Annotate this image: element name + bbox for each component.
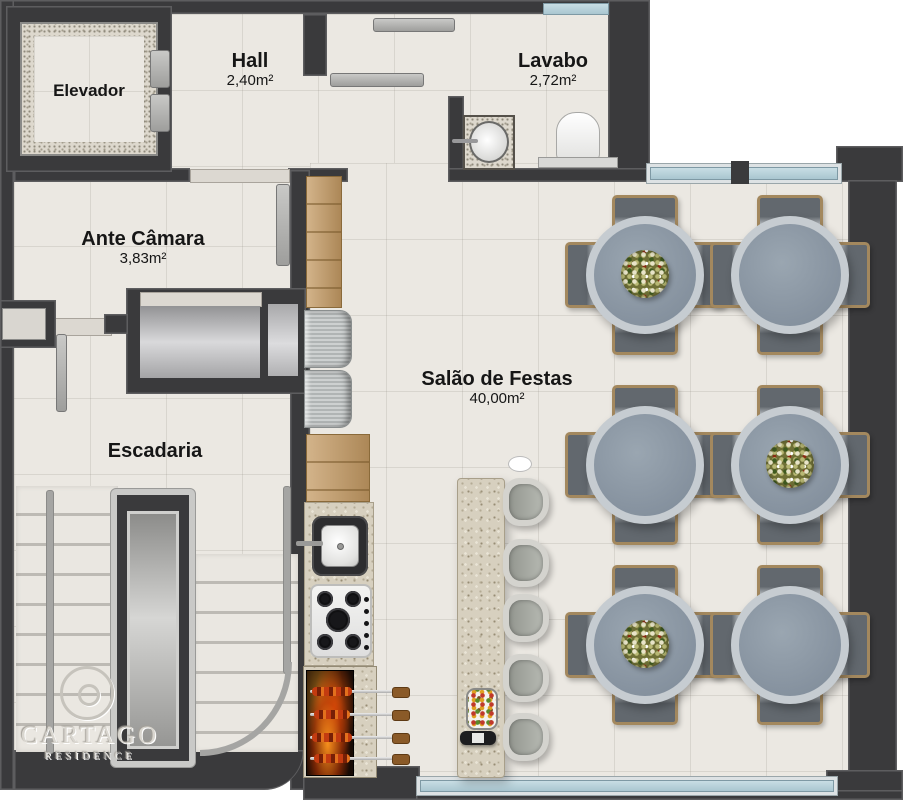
small-plate bbox=[508, 456, 532, 472]
elevator-name: Elevador bbox=[53, 80, 125, 102]
lavabo-label: Lavabo 2,72m² bbox=[518, 50, 588, 90]
sink-drain bbox=[337, 543, 344, 550]
skewer-meat-3 bbox=[312, 733, 352, 742]
ante-camara-name: Ante Câmara bbox=[81, 228, 204, 250]
bar-stool-seat bbox=[509, 660, 543, 696]
bottle-label bbox=[472, 733, 484, 743]
elevator-door-a bbox=[150, 50, 170, 88]
wall-hall-stub bbox=[303, 14, 327, 76]
stove-burner-4 bbox=[345, 634, 361, 650]
stair-rail-right bbox=[283, 486, 291, 674]
stove-knob-2 bbox=[364, 609, 369, 614]
stove-burner-1 bbox=[317, 591, 333, 607]
hall-name: Hall bbox=[227, 50, 274, 72]
ante-camara-doorway bbox=[190, 169, 290, 183]
toilet-tank bbox=[538, 157, 618, 168]
table-top bbox=[739, 594, 841, 696]
skewer-meat-4 bbox=[314, 754, 350, 763]
elevator-door-b bbox=[150, 94, 170, 132]
bar-stool-2 bbox=[503, 539, 549, 587]
bar-stool-5 bbox=[503, 713, 549, 761]
ante-camara-label: Ante Câmara 3,83m² bbox=[81, 228, 204, 268]
skewer-meat-1 bbox=[312, 687, 352, 696]
skewer-handle-4 bbox=[392, 754, 410, 765]
stove-knob-1 bbox=[364, 597, 369, 602]
stove-knob-4 bbox=[364, 633, 369, 638]
salao-area: 40,00m² bbox=[421, 390, 572, 408]
wall-salao-top-corner bbox=[836, 146, 903, 182]
logo-emblem-inner-icon bbox=[78, 684, 100, 706]
kitchen-cabinet-lower bbox=[306, 434, 370, 502]
duct-shaft-arm bbox=[104, 314, 128, 334]
dining-table-6 bbox=[710, 565, 870, 725]
wall-lavabo-bottom bbox=[448, 168, 650, 182]
bar-stool-seat bbox=[509, 484, 543, 520]
skewer-handle-1 bbox=[392, 687, 410, 698]
stove-knob-5 bbox=[364, 645, 369, 650]
salao-name: Salão de Festas bbox=[421, 368, 572, 390]
dining-table-3 bbox=[565, 385, 725, 545]
refrigerator-b bbox=[304, 370, 352, 428]
logo-name: CARTAGO bbox=[10, 722, 170, 750]
salao-top-window-mullion bbox=[731, 161, 749, 184]
escadaria-label: Escadaria bbox=[108, 440, 203, 462]
table-top bbox=[739, 224, 841, 326]
stove-burner-center bbox=[326, 608, 350, 632]
outside-right-edge bbox=[897, 163, 903, 800]
dining-table-4 bbox=[710, 385, 870, 545]
dining-table-5 bbox=[565, 565, 725, 725]
stove-burner-3 bbox=[317, 634, 333, 650]
floor-plan: Elevador bbox=[0, 0, 903, 800]
salao-label: Salão de Festas 40,00m² bbox=[421, 368, 572, 408]
wall-lavabo-right bbox=[608, 0, 650, 182]
salad-platter bbox=[621, 620, 669, 668]
lavabo-name: Lavabo bbox=[518, 50, 588, 72]
bar-stool-seat bbox=[509, 600, 543, 636]
kitchen-faucet bbox=[296, 541, 323, 546]
stair-rail-left bbox=[46, 490, 54, 754]
bar-stool-3 bbox=[503, 594, 549, 642]
stair-door-leaf bbox=[56, 334, 67, 412]
duct-shaft-core bbox=[140, 306, 260, 378]
food-platter bbox=[466, 688, 498, 730]
left-wall-niche-inner bbox=[2, 308, 46, 340]
refrigerator-a bbox=[304, 310, 352, 368]
dining-table-2 bbox=[710, 195, 870, 355]
salao-bottom-window bbox=[420, 780, 834, 792]
lavabo-window bbox=[543, 3, 609, 15]
logo-subtitle: RESIDENCE bbox=[10, 751, 170, 762]
elevator-label: Elevador bbox=[53, 80, 125, 102]
table-top bbox=[594, 414, 696, 516]
skewer-handle-3 bbox=[392, 733, 410, 744]
logo: CARTAGO RESIDENCE bbox=[10, 722, 170, 762]
bar-stool-seat bbox=[509, 719, 543, 755]
hall-label: Hall 2,40m² bbox=[227, 50, 274, 90]
bar-stool-seat bbox=[509, 545, 543, 581]
stair-void bbox=[127, 511, 179, 749]
skewer-handle-2 bbox=[392, 710, 410, 721]
hall-door-top bbox=[373, 18, 455, 32]
toilet-bowl bbox=[556, 112, 600, 162]
stove-burner-2 bbox=[345, 591, 361, 607]
escadaria-name: Escadaria bbox=[108, 440, 203, 462]
duct-shaft-lintel bbox=[140, 292, 262, 307]
bar-stool-1 bbox=[503, 478, 549, 526]
bar-stool-4 bbox=[503, 654, 549, 702]
dining-table-1 bbox=[565, 195, 725, 355]
lavabo-area: 2,72m² bbox=[518, 72, 588, 90]
duct-shaft-side bbox=[268, 304, 298, 376]
ante-camara-area: 3,83m² bbox=[81, 250, 204, 268]
skewer-meat-2 bbox=[314, 710, 350, 719]
wc-faucet bbox=[452, 139, 478, 143]
kitchen-cabinet-upper bbox=[306, 176, 342, 308]
hall-door-mid bbox=[330, 73, 424, 87]
outside-top-right bbox=[650, 0, 903, 163]
hall-area: 2,40m² bbox=[227, 72, 274, 90]
stove-knob-3 bbox=[364, 621, 369, 626]
salad-platter bbox=[621, 250, 669, 298]
ante-camara-door-leaf bbox=[276, 184, 290, 266]
salad-platter bbox=[766, 440, 814, 488]
